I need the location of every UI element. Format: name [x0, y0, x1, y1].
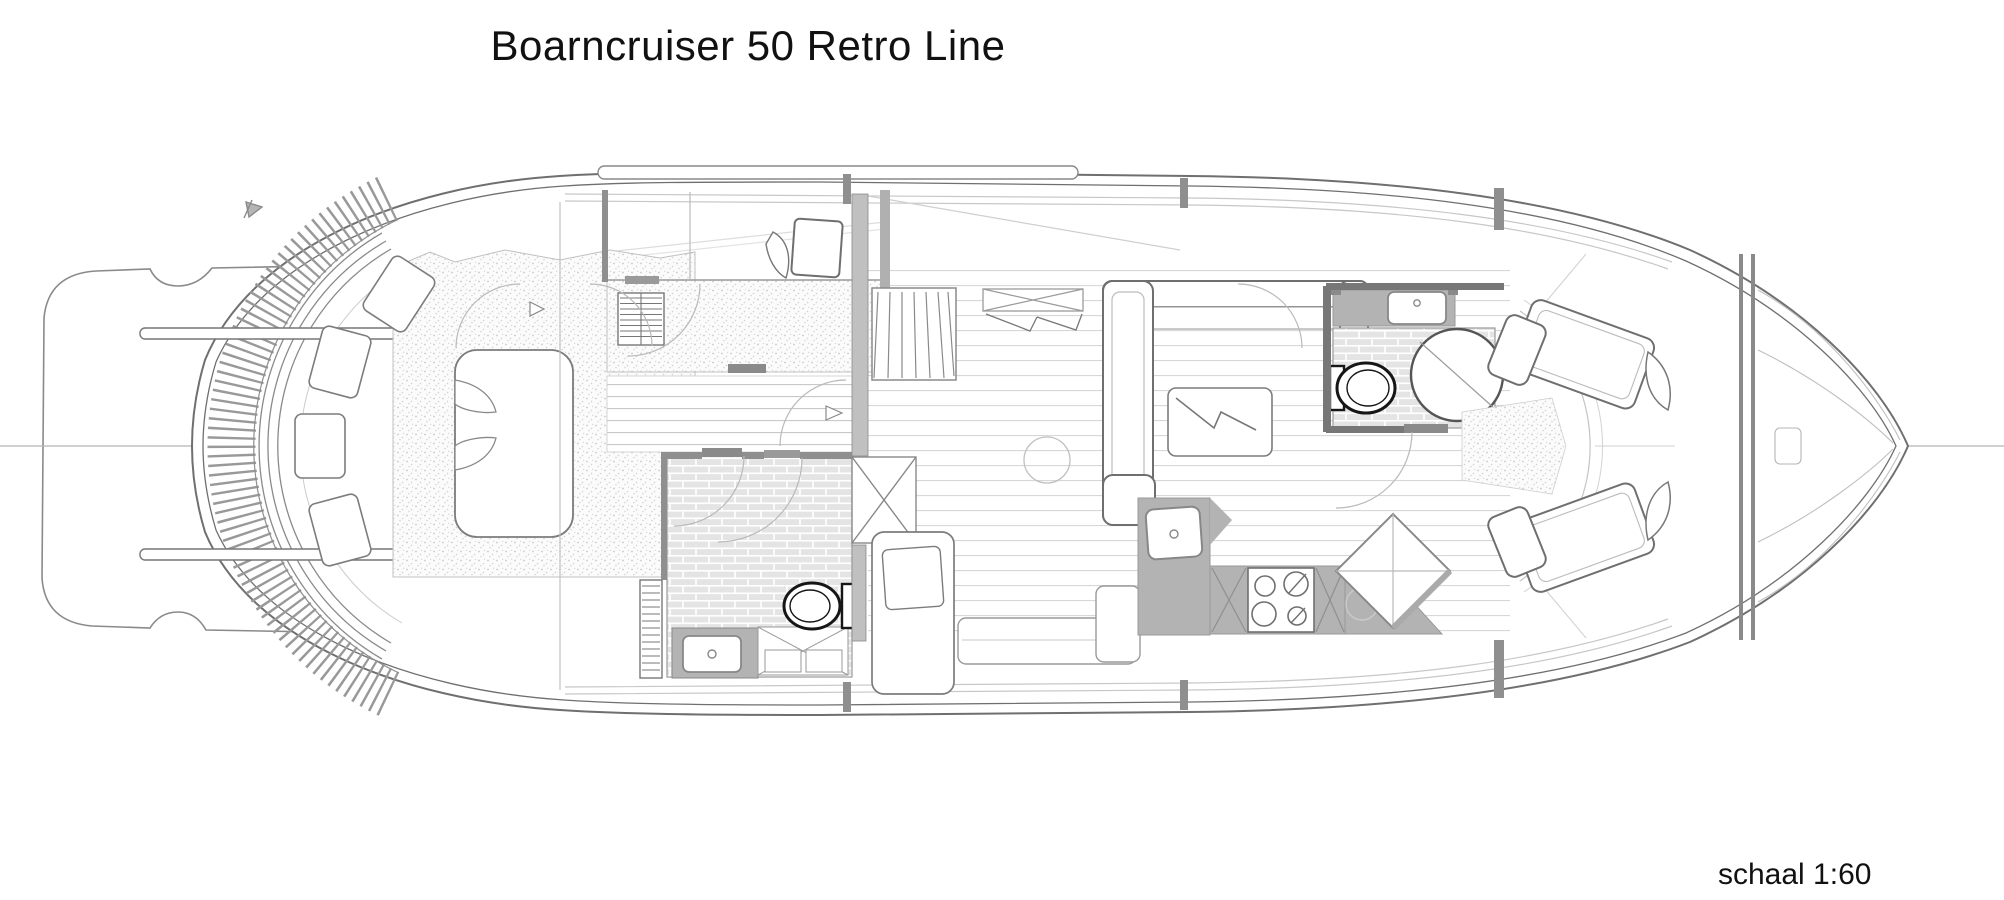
page-title: Boarncruiser 50 Retro Line: [491, 22, 1006, 69]
sink: [683, 636, 741, 672]
guest-pillow: [791, 218, 843, 277]
aft-bathroom: [640, 448, 856, 678]
door-threshold: [1404, 424, 1448, 433]
scale-label: schaal 1:60: [1718, 858, 1871, 891]
stove-4-burner: [1248, 568, 1314, 632]
stern-flag-icon: [244, 200, 262, 218]
corridor: [607, 376, 865, 452]
shower-cabin: [1411, 329, 1503, 421]
hanging-locker-louver: [618, 293, 664, 345]
toilet: [1330, 363, 1395, 413]
hanging-locker-louver: [640, 580, 662, 678]
washbasin-vanity: [672, 628, 758, 678]
door-threshold: [728, 364, 766, 373]
door-threshold: [764, 450, 800, 458]
v-berth-stipple: [1462, 398, 1566, 494]
shower-floor: [758, 627, 848, 675]
engine-hatch: [852, 457, 916, 543]
sink: [1388, 292, 1446, 324]
door-threshold: [625, 276, 659, 284]
bench-seat: [1096, 586, 1140, 662]
toilet: [784, 583, 856, 629]
coffee-table: [1168, 388, 1272, 456]
deck-plan-drawing: Boarncruiser 50 Retro Line schaal 1:60: [0, 0, 2004, 900]
door-threshold: [702, 448, 742, 457]
rub-rail: [598, 166, 1078, 179]
sink: [1145, 506, 1202, 560]
companionway-stairs: [872, 288, 956, 380]
boat-deck-plan-sheet: Boarncruiser 50 Retro Line schaal 1:60: [0, 0, 2004, 900]
